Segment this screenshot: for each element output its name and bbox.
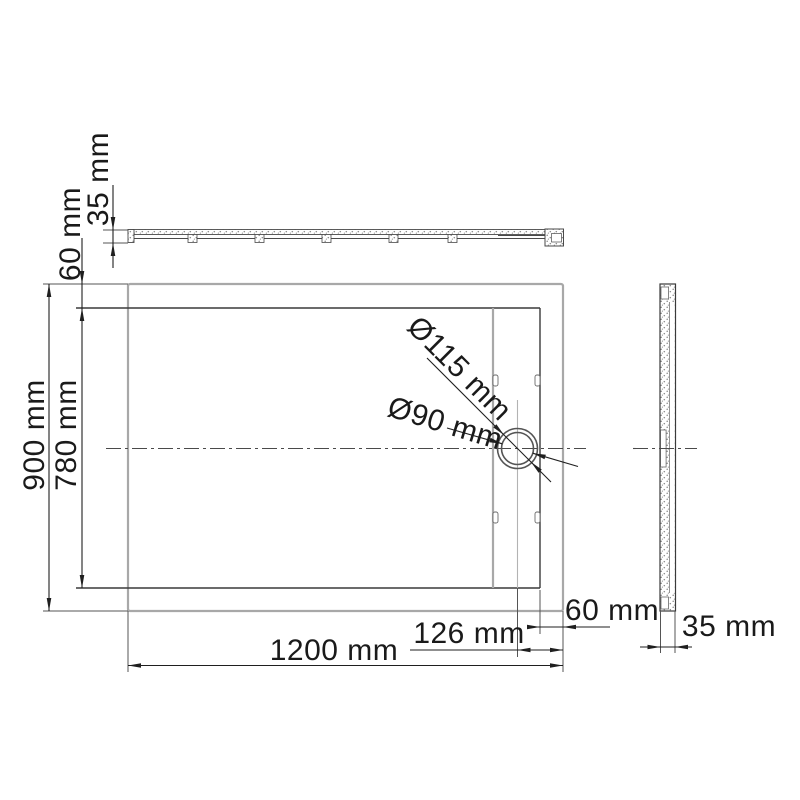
top-section-view bbox=[128, 229, 564, 246]
dim-label-60mm-top-left: 60 mm bbox=[56, 187, 86, 281]
dim-label-1200mm: 1200 mm bbox=[270, 636, 399, 666]
dim-label-60mm-right: 60 mm bbox=[565, 596, 659, 626]
dim-label-780mm: 780 mm bbox=[52, 379, 82, 490]
technical-drawing: 35 mm 60 mm 900 mm 780 mm Ø115 mm Ø90 mm… bbox=[0, 0, 800, 800]
dim-label-900mm: 900 mm bbox=[20, 379, 50, 490]
dim-label-35mm-top: 35 mm bbox=[84, 132, 114, 226]
plan-view bbox=[76, 284, 586, 611]
dim-label-35mm-side: 35 mm bbox=[682, 612, 776, 642]
dim-label-126mm: 126 mm bbox=[413, 619, 524, 649]
side-section-view bbox=[633, 284, 697, 611]
drain-housing-section bbox=[545, 229, 564, 246]
